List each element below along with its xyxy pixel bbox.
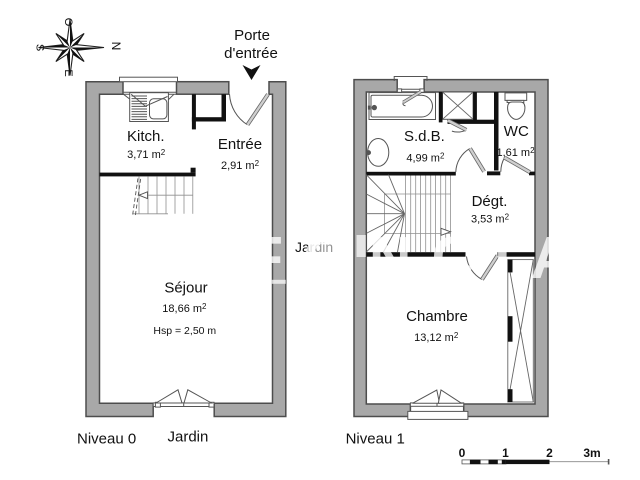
svg-text:1,61 m2: 1,61 m2 [496, 146, 535, 159]
svg-text:Porte: Porte [234, 27, 270, 44]
svg-text:3,53 m2: 3,53 m2 [471, 213, 510, 226]
svg-text:3m: 3m [583, 446, 600, 460]
svg-text:2: 2 [546, 446, 553, 460]
svg-text:Entrée: Entrée [218, 136, 262, 153]
svg-text:Hsp = 2,50 m: Hsp = 2,50 m [153, 325, 216, 337]
svg-text:O: O [62, 18, 74, 27]
svg-text:Jardin: Jardin [168, 429, 209, 446]
svg-text:Chambre: Chambre [406, 308, 468, 325]
svg-text:2,91 m2: 2,91 m2 [221, 159, 260, 172]
svg-text:18,66 m2: 18,66 m2 [162, 302, 207, 315]
svg-text:Niveau 1: Niveau 1 [346, 430, 405, 447]
svg-text:N: N [109, 42, 123, 51]
svg-text:13,12 m2: 13,12 m2 [414, 331, 459, 344]
svg-text:FONCIA: FONCIA [247, 225, 593, 291]
svg-text:1: 1 [502, 446, 509, 460]
svg-text:WC: WC [504, 123, 529, 140]
svg-text:Dégt.: Dégt. [472, 193, 508, 210]
svg-text:Séjour: Séjour [164, 280, 207, 297]
svg-text:S: S [34, 44, 46, 51]
svg-text:S.d.B.: S.d.B. [404, 128, 445, 145]
svg-text:Niveau 0: Niveau 0 [77, 430, 136, 447]
svg-text:E: E [62, 69, 74, 76]
svg-text:0: 0 [459, 446, 466, 460]
svg-text:d'entrée: d'entrée [224, 45, 278, 62]
svg-text:Kitch.: Kitch. [127, 128, 165, 145]
svg-text:4,99 m2: 4,99 m2 [406, 152, 445, 165]
svg-text:3,71 m2: 3,71 m2 [127, 148, 166, 161]
